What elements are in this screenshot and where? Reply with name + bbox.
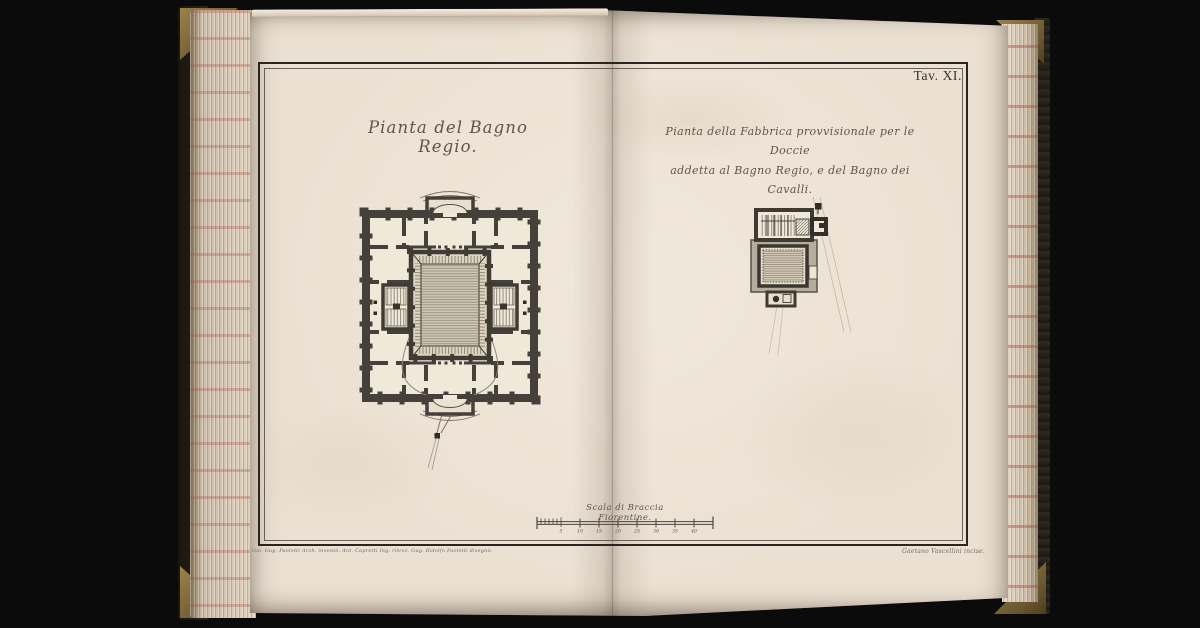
engraver-credit: Gaetano Vascellini incise.	[865, 548, 985, 555]
draughtsman-credit: Gio. Gug. Paoletti Arch. inventò. Ant. C…	[252, 548, 493, 554]
book-photograph: Tav. XI. Pianta del Bagno Regio. Pianta …	[0, 0, 1200, 628]
scale-label: Scala di Braccia Fiorentine.	[560, 503, 690, 523]
sheet-edge-top	[252, 8, 608, 17]
plan-title-right-line2: addetta al Bagno Regio, e del Bagno dei …	[662, 161, 918, 200]
plan-title-left: Pianta del Bagno Regio.	[340, 118, 556, 156]
plate-number: Tav. XI.	[880, 68, 962, 84]
page-fore-edge-left	[190, 10, 256, 618]
plan-title-right: Pianta della Fabbrica provvisionale per …	[662, 122, 918, 199]
plan-title-right-line1: Pianta della Fabbrica provvisionale per …	[662, 122, 918, 161]
